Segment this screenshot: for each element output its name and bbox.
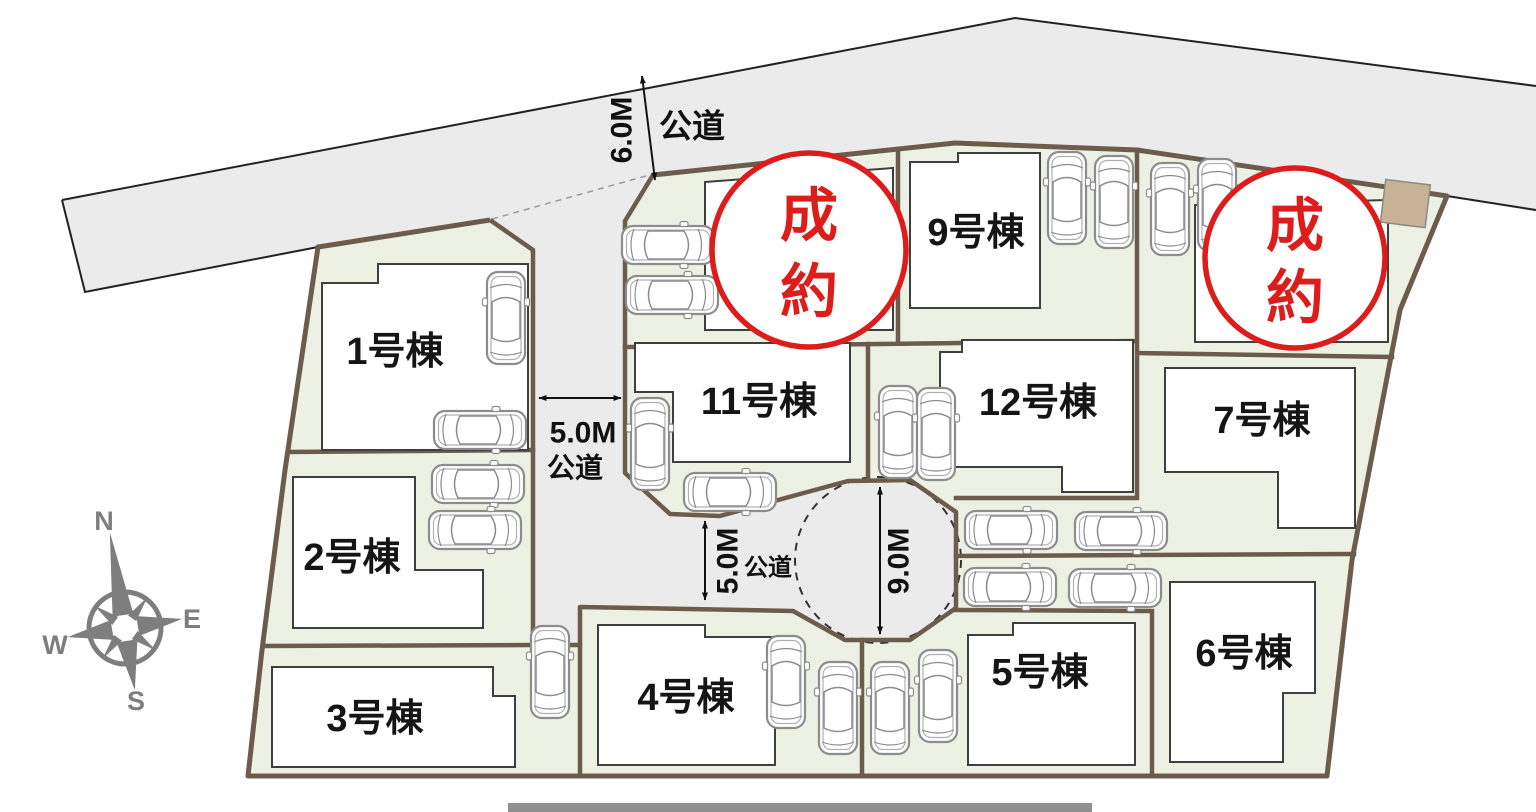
west-road-width-label: 5.0M bbox=[550, 417, 617, 450]
lot-label-2: 2号棟 bbox=[303, 537, 401, 579]
car-icon bbox=[875, 386, 922, 478]
sold-char-2: 約 bbox=[780, 260, 838, 325]
car-icon bbox=[964, 564, 1056, 611]
sold-char-1: 成 bbox=[780, 184, 838, 249]
car-icon bbox=[1044, 152, 1091, 244]
shed-square bbox=[1380, 179, 1430, 227]
site-plan: 6.0M 公道 5.0M 公道 5.0M 公道 9.0M 1号棟 2号棟 3号棟… bbox=[0, 0, 1536, 812]
car-icon bbox=[763, 636, 810, 728]
compass-label-e: E bbox=[183, 604, 201, 634]
car-icon bbox=[684, 469, 776, 516]
car-icon bbox=[815, 662, 862, 754]
car-icon bbox=[527, 626, 574, 718]
south-road-name-label: 公道 bbox=[744, 554, 792, 582]
building-5 bbox=[968, 623, 1135, 765]
compass-label-n: N bbox=[94, 506, 114, 536]
car-icon bbox=[913, 388, 960, 480]
lot-label-6: 6号棟 bbox=[1195, 633, 1293, 675]
west-road-name-label: 公道 bbox=[547, 452, 603, 484]
sold-badge-2: 成 約 bbox=[1205, 168, 1385, 348]
car-icon bbox=[1069, 565, 1161, 612]
compass-label-s: S bbox=[127, 686, 145, 716]
car-icon bbox=[915, 650, 962, 742]
compass-label-w: W bbox=[42, 630, 68, 660]
sold-char-2: 約 bbox=[1266, 266, 1324, 331]
car-icon bbox=[1075, 508, 1167, 555]
car-icon bbox=[434, 407, 526, 454]
car-icon bbox=[1147, 163, 1194, 255]
car-icon bbox=[627, 398, 674, 490]
bottom-strip bbox=[508, 803, 1092, 812]
lot-label-12: 12号棟 bbox=[979, 382, 1098, 424]
car-icon bbox=[965, 507, 1057, 554]
car-icon bbox=[626, 272, 718, 319]
culdesac-width-label: 9.0M bbox=[883, 528, 916, 595]
lot-label-11: 11号棟 bbox=[701, 381, 818, 423]
car-icon bbox=[483, 272, 530, 364]
car-icon bbox=[1091, 156, 1138, 248]
car-icon bbox=[429, 507, 521, 554]
car-icon bbox=[622, 222, 714, 269]
sold-char-1: 成 bbox=[1266, 194, 1324, 259]
top-road-name-label: 公道 bbox=[659, 108, 725, 145]
top-road-width-label: 6.0M bbox=[606, 97, 639, 164]
lot-label-3: 3号棟 bbox=[326, 698, 424, 740]
site-plan-canvas: 6.0M 公道 5.0M 公道 5.0M 公道 9.0M 1号棟 2号棟 3号棟… bbox=[0, 0, 1536, 812]
lot-label-1: 1号棟 bbox=[346, 331, 444, 373]
car-icon bbox=[432, 461, 524, 508]
lot-label-5: 5号棟 bbox=[991, 652, 1089, 694]
lot-label-4: 4号棟 bbox=[637, 677, 735, 719]
sold-badge-1: 成 約 bbox=[712, 153, 906, 347]
south-road-width-label: 5.0M bbox=[712, 528, 745, 595]
lot-label-7: 7号棟 bbox=[1213, 400, 1311, 442]
car-icon bbox=[867, 662, 914, 754]
lot-label-9: 9号棟 bbox=[927, 212, 1025, 254]
